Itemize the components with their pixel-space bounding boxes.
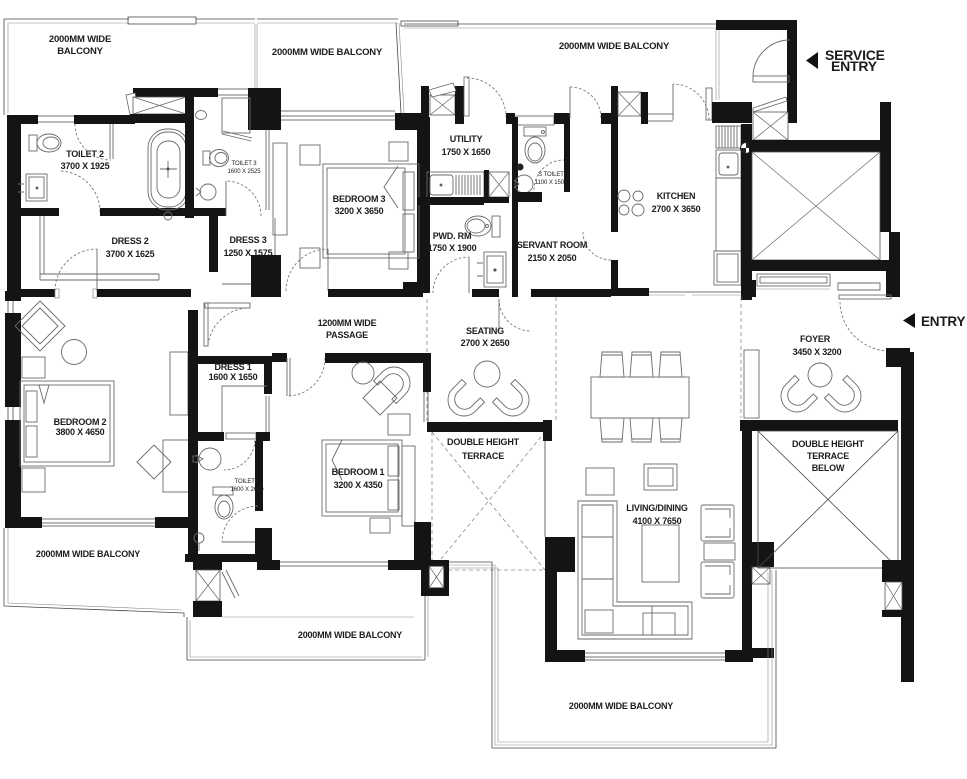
svg-text:PWD. RM: PWD. RM [433, 231, 472, 241]
svg-text:2700 X 3650: 2700 X 3650 [652, 204, 701, 214]
svg-text:S TOILET: S TOILET [538, 172, 564, 178]
svg-text:1750 X 1900: 1750 X 1900 [428, 243, 477, 253]
svg-text:3700 X 1925: 3700 X 1925 [61, 161, 110, 171]
svg-text:BEDROOM 2: BEDROOM 2 [54, 417, 107, 427]
svg-text:BEDROOM 1: BEDROOM 1 [332, 467, 385, 477]
svg-text:1100 X 1500: 1100 X 1500 [535, 180, 568, 186]
svg-text:DRESS 1: DRESS 1 [214, 362, 251, 372]
svg-text:UTILITY: UTILITY [450, 134, 483, 144]
svg-text:SERVANT ROOM: SERVANT ROOM [517, 240, 587, 250]
svg-text:SEATING: SEATING [466, 326, 504, 336]
svg-text:ENTRY: ENTRY [831, 58, 878, 74]
svg-text:1600 X 2600: 1600 X 2600 [231, 487, 265, 493]
svg-text:2000MM WIDE BALCONY: 2000MM WIDE BALCONY [36, 549, 140, 559]
svg-text:4100 X 7650: 4100 X 7650 [633, 516, 682, 526]
svg-text:TERRACE: TERRACE [462, 451, 504, 461]
svg-text:2000MM WIDE BALCONY: 2000MM WIDE BALCONY [559, 41, 670, 52]
svg-text:3450 X 3200: 3450 X 3200 [793, 347, 842, 357]
svg-text:TOILET 1: TOILET 1 [235, 479, 261, 485]
svg-text:3800 X 4650: 3800 X 4650 [56, 427, 105, 437]
svg-text:2700 X 2650: 2700 X 2650 [461, 338, 510, 348]
svg-text:1600 X 2525: 1600 X 2525 [228, 169, 262, 175]
svg-text:LIVING/DINING: LIVING/DINING [626, 503, 688, 513]
svg-text:DOUBLE HEIGHT: DOUBLE HEIGHT [447, 437, 520, 447]
svg-text:ENTRY: ENTRY [921, 314, 965, 329]
svg-text:PASSAGE: PASSAGE [326, 330, 368, 340]
svg-text:BALCONY: BALCONY [57, 46, 103, 57]
svg-text:FOYER: FOYER [800, 334, 831, 344]
svg-text:3200 X 4350: 3200 X 4350 [334, 480, 383, 490]
svg-text:2150 X 2050: 2150 X 2050 [528, 253, 577, 263]
svg-text:1750 X 1650: 1750 X 1650 [442, 147, 491, 157]
svg-text:2000MM WIDE BALCONY: 2000MM WIDE BALCONY [272, 47, 383, 58]
svg-text:1200MM WIDE: 1200MM WIDE [318, 318, 377, 328]
svg-text:3200 X 3650: 3200 X 3650 [335, 206, 384, 216]
svg-text:KITCHEN: KITCHEN [657, 191, 696, 201]
svg-text:TOILET 3: TOILET 3 [232, 161, 258, 167]
svg-text:TERRACE: TERRACE [807, 451, 849, 461]
svg-text:DOUBLE HEIGHT: DOUBLE HEIGHT [792, 439, 865, 449]
svg-text:BELOW: BELOW [812, 463, 845, 473]
svg-text:DRESS 2: DRESS 2 [111, 236, 148, 246]
svg-text:3700 X 1625: 3700 X 1625 [106, 249, 155, 259]
svg-text:BEDROOM 3: BEDROOM 3 [333, 194, 386, 204]
svg-text:2000MM WIDE BALCONY: 2000MM WIDE BALCONY [569, 701, 673, 711]
svg-text:2000MM WIDE BALCONY: 2000MM WIDE BALCONY [298, 630, 402, 640]
svg-text:2000MM WIDE: 2000MM WIDE [49, 34, 111, 45]
svg-text:1600 X 1650: 1600 X 1650 [209, 372, 258, 382]
svg-text:DRESS 3: DRESS 3 [229, 235, 266, 245]
